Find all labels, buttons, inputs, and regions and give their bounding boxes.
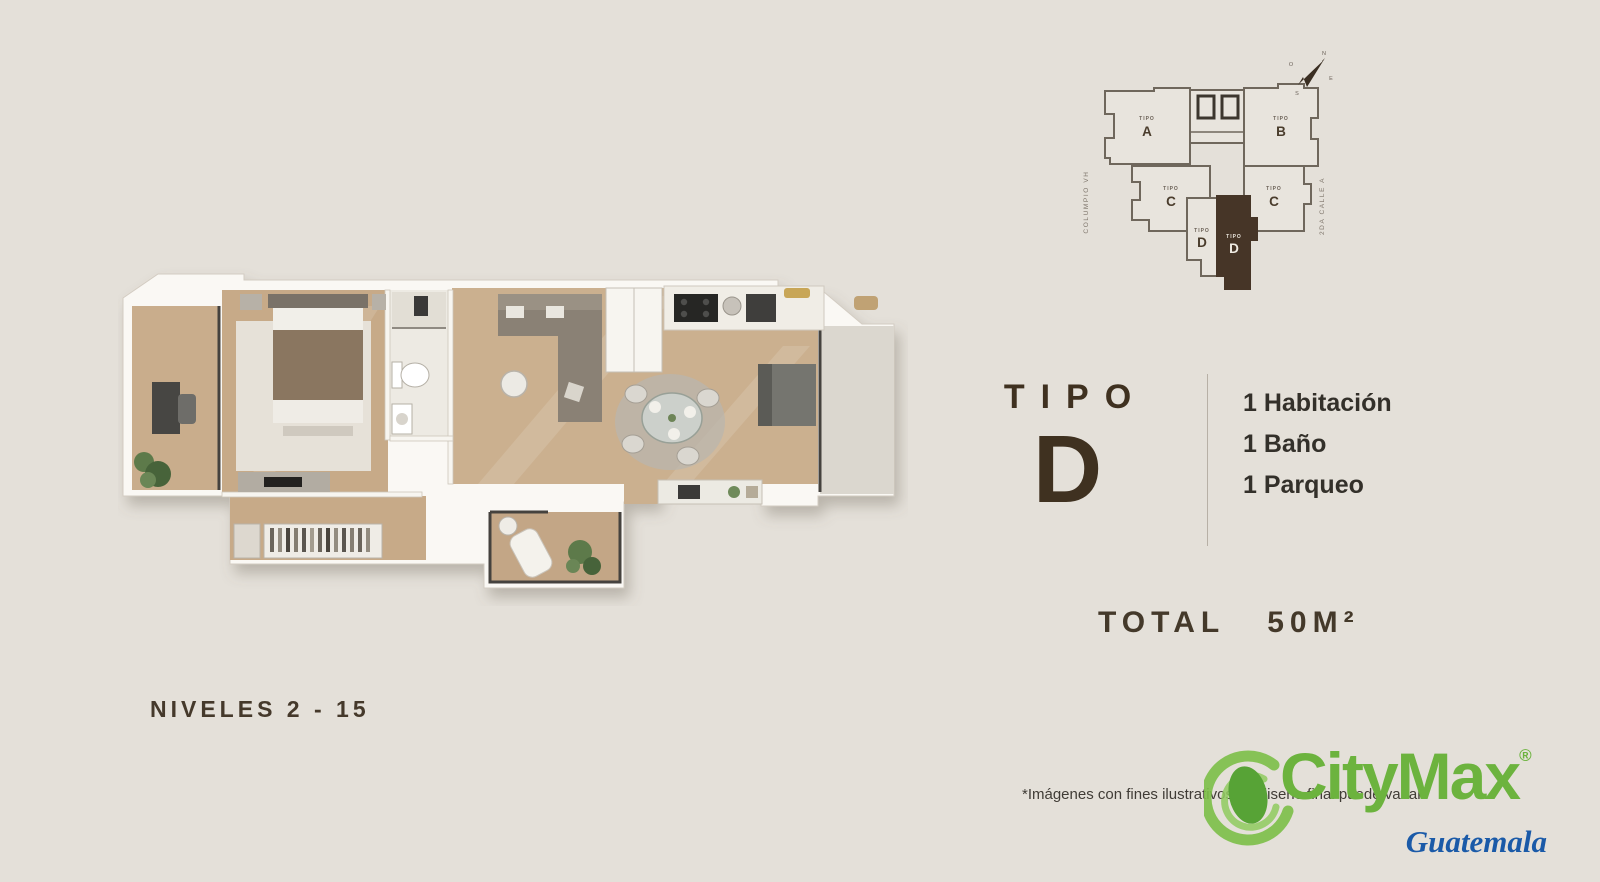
balcony-desk [152,382,180,434]
registered-mark: ® [1519,746,1532,765]
total-area-line: TOTAL50M² [1098,606,1360,640]
vertical-divider [1207,374,1208,546]
core-shape [1190,90,1244,143]
unit-A-tipo: TIPO [1139,116,1155,122]
gold-tray [784,288,810,298]
kitchen-island [658,480,762,504]
unit-C2-tipo: TIPO [1266,186,1282,192]
entry-closet-area [234,524,382,558]
compass-o: O [1289,62,1294,68]
unit-C1-tipo: TIPO [1163,186,1179,192]
site-plan: TIPO A TIPO B TIPO C TIPO C TIPO D TIPO … [1052,44,1352,302]
site-plan-units: TIPO A TIPO B TIPO C TIPO C TIPO D TIPO … [1105,84,1318,289]
side-table [499,517,517,535]
floor-plan-render [118,266,908,606]
toilet [392,362,429,388]
compass-s: S [1295,91,1299,97]
brand-region: Guatemala [1406,824,1547,860]
balcony-chair [178,394,196,424]
tv-console [238,472,330,492]
nightstand-left [240,294,262,310]
shoe-rack [234,524,260,558]
unit-A-letter: A [1142,124,1152,139]
total-value: 50M² [1267,606,1359,639]
unit-type-block: TIPO D [980,378,1155,515]
cooktop [674,294,718,322]
coffee-table [501,371,527,397]
dark-cabinet [746,294,776,322]
wardrobe [264,524,382,558]
levels-label: NIVELES 2 - 15 [150,696,370,723]
nightstand-right [372,294,386,310]
fridge [758,364,816,426]
unit-B-letter: B [1276,124,1286,139]
right-terrace [854,296,878,310]
unit-type-letter: D [980,425,1155,515]
unit-B-tipo: TIPO [1273,116,1289,122]
bedroom-area [236,294,386,492]
street-label-left: COLUMPIO VH [1083,170,1090,233]
dining-area [615,374,725,470]
compass-n: N [1322,51,1326,57]
feature-bedrooms: 1 Habitación [1243,386,1392,427]
bed [268,294,368,436]
pantry-closet [606,288,662,372]
total-label: TOTAL [1098,606,1225,639]
unit-D1-letter: D [1197,235,1207,250]
feature-parking: 1 Parqueo [1243,468,1392,509]
unit-D2-letter: D [1229,241,1239,256]
unit-D2-tipo: TIPO [1226,234,1242,240]
unit-type-label: TIPO [980,378,1155,417]
terrace-chair [854,296,878,310]
feature-bathrooms: 1 Baño [1243,427,1392,468]
feature-list: 1 Habitación 1 Baño 1 Parqueo [1243,386,1392,509]
kitchen-sink-bowl [723,297,741,315]
unit-C1-letter: C [1166,194,1176,209]
compass-e: E [1329,76,1333,82]
street-label-right: 2DA CALLE A [1319,177,1326,235]
unit-C2-letter: C [1269,194,1279,209]
unit-D1-tipo: TIPO [1194,228,1210,234]
sink [392,404,412,434]
citymax-logo: CityMax® Guatemala [1190,738,1575,878]
brand-name: CityMax® [1280,738,1532,814]
